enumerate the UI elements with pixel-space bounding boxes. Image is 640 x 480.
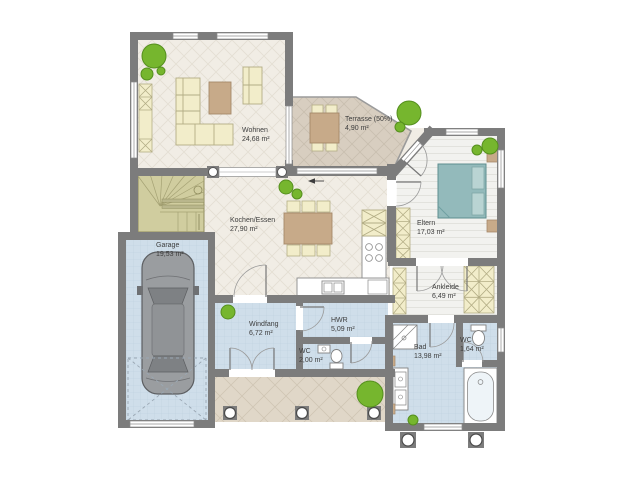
room-label-wohnen: Wohnen24,68 m²	[242, 126, 270, 144]
car	[137, 252, 199, 394]
floor-plan-svg	[0, 0, 640, 480]
sofa-small	[243, 67, 262, 104]
room-label-hwr: HWR5,09 m²	[331, 316, 355, 334]
plant-icon	[408, 415, 418, 425]
nightstand	[487, 220, 498, 232]
room-label-terrasse: Terrasse (50%)4,90 m²	[345, 115, 392, 133]
plant-icon	[395, 101, 421, 132]
room-label-garage: Garage19,53 m²	[156, 241, 184, 259]
bathtub	[464, 368, 497, 425]
terrace-table	[310, 113, 339, 143]
plant-icon	[357, 381, 383, 407]
front-door	[229, 369, 275, 377]
staircase	[138, 174, 204, 232]
toilet-guest	[330, 350, 343, 370]
room-label-kochen-essen: Kochen/Essen27,90 m²	[230, 216, 275, 234]
room-label-ankleide: Ankleide6,49 m²	[432, 283, 459, 301]
plant-icon	[221, 305, 235, 319]
room-label-wc-master: WC1,64 m²	[460, 336, 484, 354]
room-label-eltern: Eltern17,03 m²	[417, 219, 445, 237]
bed	[438, 164, 486, 218]
floor-plan-canvas: Wohnen24,68 m² Terrasse (50%)4,90 m² Koc…	[0, 0, 640, 480]
wardrobe	[396, 208, 410, 262]
room-label-bad: Bad13,98 m²	[414, 343, 442, 361]
dining-table	[284, 213, 332, 244]
shelf-unit	[139, 84, 152, 152]
room-label-windfang: Windfang6,72 m²	[249, 320, 279, 338]
tall-cabinet	[362, 210, 386, 236]
room-label-wc-guest: WC2,00 m²	[299, 347, 323, 365]
furniture-essen	[284, 201, 332, 256]
coffee-table	[209, 82, 231, 114]
